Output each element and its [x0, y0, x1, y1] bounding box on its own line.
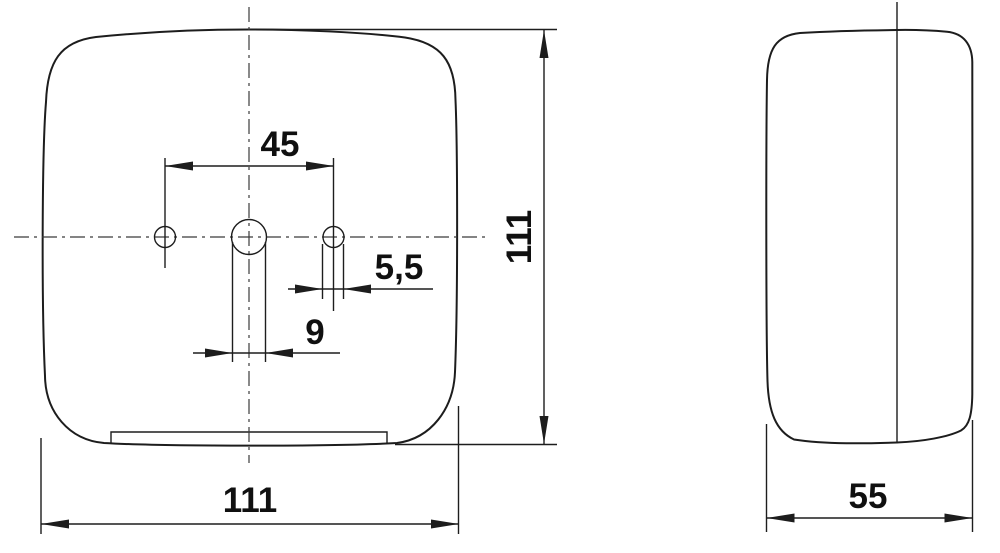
- dim-overall-depth-label: 55: [849, 477, 888, 516]
- dim-small-slot-label: 5,5: [375, 248, 424, 287]
- side-view: [766, 2, 972, 443]
- dim-small-slot: 5,5: [288, 248, 433, 294]
- dim-center-slot: 9: [193, 313, 340, 358]
- arrowhead-right: [344, 285, 372, 294]
- arrowhead-left: [295, 285, 323, 294]
- dim-overall-width-label: 111: [223, 481, 278, 520]
- dim-overall-height-label: 111: [500, 210, 539, 265]
- arrowhead-right: [431, 520, 459, 529]
- dim-hole-spacing-label: 45: [261, 125, 300, 164]
- front-view: [14, 7, 486, 463]
- side-outline: [766, 30, 972, 443]
- dim-overall-width: 111: [41, 406, 459, 534]
- dimension-drawing: 45 5,5 9 111 111: [0, 0, 1000, 553]
- arrowhead-left: [205, 349, 233, 358]
- technical-drawing-canvas: 45 5,5 9 111 111: [0, 0, 1000, 553]
- arrowhead-top: [540, 30, 549, 58]
- arrowhead-left: [767, 514, 795, 523]
- arrowhead-left: [165, 162, 193, 171]
- arrowhead-bottom: [540, 416, 549, 444]
- arrowhead-left: [41, 520, 69, 529]
- arrowhead-right: [945, 514, 973, 523]
- arrowhead-right: [306, 162, 334, 171]
- arrowhead-right: [266, 349, 294, 358]
- dim-center-slot-label: 9: [305, 313, 324, 352]
